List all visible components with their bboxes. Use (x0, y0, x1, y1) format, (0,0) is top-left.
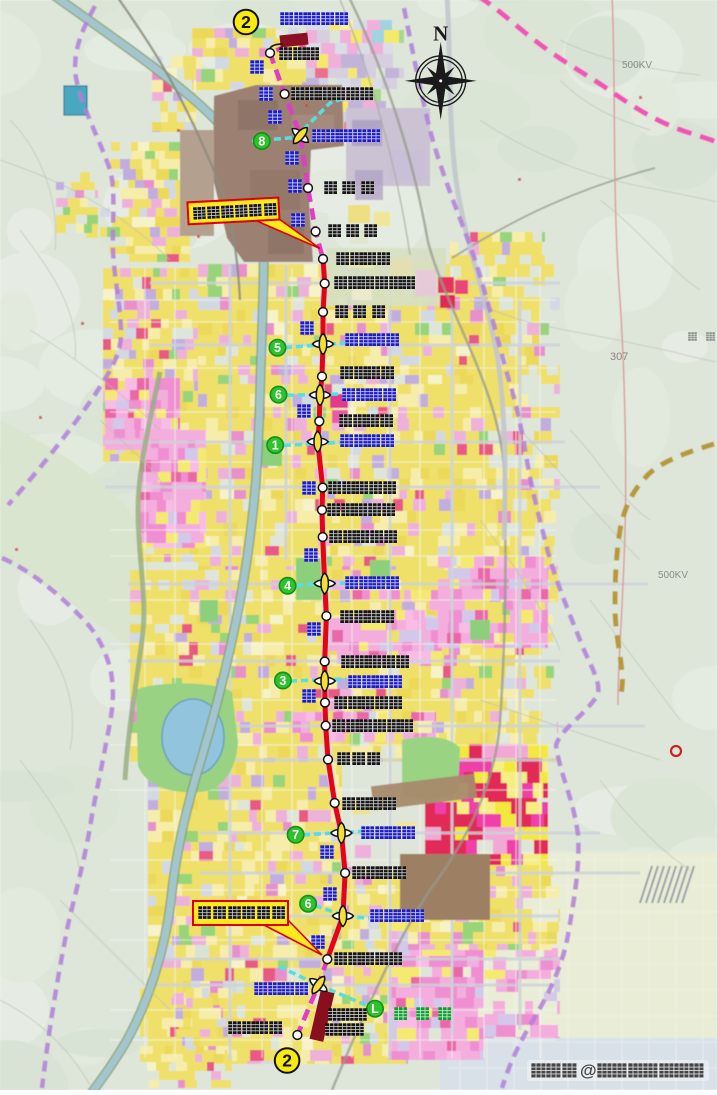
svg-text:2: 2 (241, 12, 251, 32)
svg-text:@: @ (580, 1061, 597, 1080)
svg-text:3: 3 (279, 674, 286, 688)
svg-text:N: N (433, 21, 448, 45)
svg-text:6: 6 (305, 897, 312, 911)
svg-text:307: 307 (610, 351, 628, 363)
svg-text:2: 2 (282, 1051, 292, 1071)
svg-text:500KV: 500KV (622, 60, 652, 71)
svg-text:1: 1 (272, 438, 279, 452)
svg-text:500KV: 500KV (658, 570, 688, 581)
svg-text:6: 6 (275, 388, 282, 402)
svg-text:5: 5 (274, 341, 281, 355)
svg-text:4: 4 (284, 579, 291, 593)
svg-text:8: 8 (258, 134, 265, 148)
svg-text:L: L (371, 1002, 379, 1016)
svg-text:7: 7 (292, 828, 299, 842)
